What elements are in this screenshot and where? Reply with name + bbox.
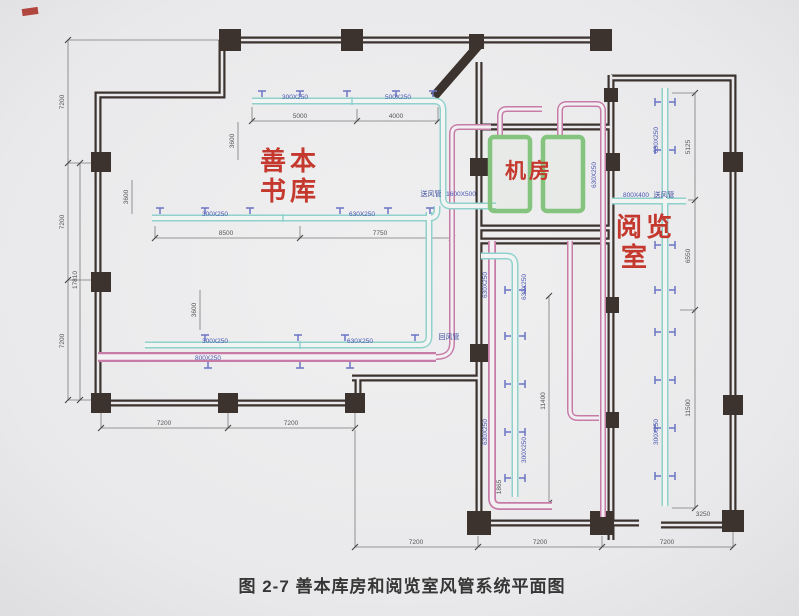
duct-size-label: 630X250 — [653, 127, 660, 153]
room-label-rare-book-line2: 书库 — [260, 176, 320, 206]
dim-label: 11500 — [685, 399, 692, 417]
dim-label: 1865 — [496, 479, 503, 494]
supply-duct-annotation: 送风管 — [654, 190, 675, 199]
duct-size-label: 1600X500 — [446, 191, 476, 198]
room-label-machine-room: 机房 — [505, 159, 553, 183]
dim-label: 3600 — [191, 302, 198, 317]
dim-label: 6550 — [685, 248, 692, 263]
dim-label: 11400 — [540, 392, 547, 410]
scanned-drawing-page: 300X250 500X250 300X250 630X250 300X250 … — [0, 0, 799, 616]
duct-size-label: 800X400 — [623, 192, 649, 199]
dim-label: 7200 — [59, 214, 66, 229]
return-duct-annotation: 回风管 — [439, 332, 460, 341]
dim-label: 4000 — [389, 113, 404, 120]
figure-caption: 图 2-7 善本库房和阅览室风管系统平面图 — [238, 576, 565, 596]
supply-duct-annotation: 送风管 — [421, 189, 442, 198]
duct-size-label: 630X250 — [521, 274, 528, 300]
duct-size-label: 300X250 — [282, 94, 308, 101]
duct-size-label: 300X250 — [653, 419, 660, 445]
duct-size-label: 630X250 — [349, 211, 375, 218]
duct-size-label: 630X250 — [347, 338, 373, 345]
dim-label: 17810 — [72, 271, 79, 289]
duct-size-label: 300X250 — [521, 437, 528, 463]
duct-size-label: 630X250 — [591, 162, 598, 188]
duct-size-label: 630X250 — [482, 272, 489, 298]
duct-size-label: 630X250 — [482, 419, 489, 445]
dim-label: 7200 — [157, 420, 172, 427]
dim-label: 7750 — [373, 230, 388, 237]
dim-label: 7200 — [59, 94, 66, 109]
dim-label: 3250 — [696, 511, 711, 518]
dim-label: 7200 — [59, 333, 66, 348]
dim-label: 5000 — [293, 113, 308, 120]
duct-size-label: 800X250 — [195, 355, 221, 362]
dim-label: 7200 — [409, 539, 424, 546]
dim-label: 8500 — [219, 230, 234, 237]
duct-size-label: 500X250 — [385, 94, 411, 101]
duct-plan-drawing: 300X250 500X250 300X250 630X250 300X250 … — [0, 0, 799, 616]
dim-label: 3600 — [123, 189, 130, 204]
duct-size-label: 300X250 — [202, 338, 228, 345]
room-label-reading-line1: 阅览 — [616, 212, 676, 242]
room-label-reading-line2: 室 — [621, 242, 651, 272]
dim-label: 7200 — [284, 420, 299, 427]
dim-label: 7200 — [533, 539, 548, 546]
dim-label: 7200 — [660, 539, 675, 546]
duct-size-label: 300X250 — [202, 211, 228, 218]
room-label-rare-book-line1: 善本 — [260, 146, 320, 176]
dim-label: 5125 — [685, 139, 692, 154]
dim-label: 3600 — [229, 133, 236, 148]
